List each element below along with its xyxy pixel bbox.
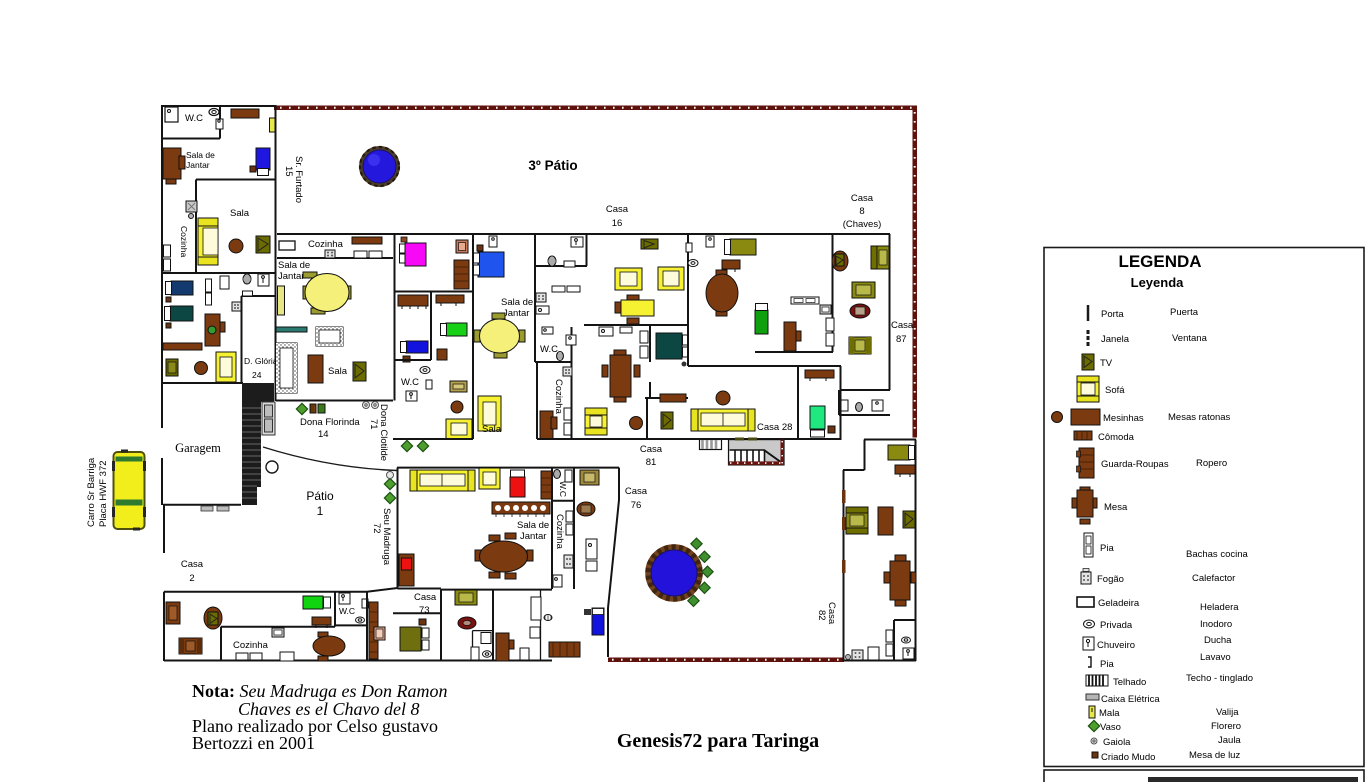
svg-text:71: 71: [368, 419, 379, 430]
svg-text:Calefactor: Calefactor: [1192, 573, 1235, 584]
svg-text:Casa: Casa: [606, 204, 629, 215]
svg-text:W.C: W.C: [185, 113, 203, 124]
svg-text:Sala de: Sala de: [517, 520, 549, 531]
svg-text:Nota: Seu Madruga es Don Ramon: Nota: Seu Madruga es Don Ramon: [192, 681, 447, 701]
svg-text:2: 2: [189, 573, 194, 584]
svg-text:Sala: Sala: [230, 208, 250, 219]
svg-text:Bachas cocina: Bachas cocina: [1186, 549, 1249, 560]
svg-text:Casa: Casa: [181, 559, 204, 570]
svg-text:Leyenda: Leyenda: [1131, 275, 1185, 290]
svg-text:8: 8: [859, 206, 864, 217]
svg-text:Vaso: Vaso: [1100, 722, 1121, 733]
svg-text:16: 16: [612, 218, 623, 229]
svg-text:Seu Madruga: Seu Madruga: [381, 508, 392, 566]
svg-text:Dona Florinda: Dona Florinda: [300, 417, 360, 428]
svg-text:Sala: Sala: [482, 424, 502, 435]
svg-text:Sofá: Sofá: [1105, 385, 1125, 396]
svg-text:Garagem: Garagem: [175, 441, 221, 455]
svg-text:Geladeira: Geladeira: [1098, 598, 1140, 609]
svg-text:Mala: Mala: [1099, 708, 1120, 719]
svg-text:Sala de: Sala de: [501, 297, 533, 308]
svg-text:Fogão: Fogão: [1097, 574, 1124, 585]
svg-text:Telhado: Telhado: [1113, 677, 1146, 688]
svg-text:1: 1: [317, 504, 324, 518]
svg-text:24: 24: [252, 370, 262, 380]
svg-text:TV: TV: [1100, 358, 1113, 369]
svg-text:Porta: Porta: [1101, 309, 1124, 320]
svg-text:Gaiola: Gaiola: [1103, 737, 1131, 748]
svg-text:Sala de: Sala de: [186, 150, 215, 160]
svg-text:81: 81: [646, 457, 657, 468]
svg-text:Genesis72 para Taringa: Genesis72 para Taringa: [617, 730, 819, 752]
svg-text:LEGENDA: LEGENDA: [1118, 252, 1201, 271]
svg-text:Ventana: Ventana: [1172, 333, 1208, 344]
svg-text:Placa HWF 372: Placa HWF 372: [98, 460, 109, 527]
svg-text:Ducha: Ducha: [1204, 635, 1232, 646]
svg-text:Dona Clotilde: Dona Clotilde: [378, 404, 389, 461]
svg-text:Jantar: Jantar: [520, 531, 546, 542]
svg-text:72: 72: [371, 523, 382, 534]
svg-text:Janela: Janela: [1101, 334, 1130, 345]
svg-text:Jantar: Jantar: [503, 308, 529, 319]
svg-text:Cozinha: Cozinha: [233, 640, 269, 651]
svg-text:Jaula: Jaula: [1218, 735, 1241, 746]
svg-text:15: 15: [283, 166, 294, 177]
svg-text:Mesas ratonas: Mesas ratonas: [1168, 412, 1231, 423]
svg-text:Privada: Privada: [1100, 620, 1133, 631]
svg-text:Pia: Pia: [1100, 659, 1114, 670]
svg-text:Heladera: Heladera: [1200, 602, 1239, 613]
svg-text:Puerta: Puerta: [1170, 307, 1199, 318]
svg-text:Inodoro: Inodoro: [1200, 619, 1232, 630]
svg-text:Techo - tinglado: Techo - tinglado: [1186, 673, 1253, 684]
svg-text:Sr. Furtado: Sr. Furtado: [293, 156, 304, 203]
svg-text:3º Pátio: 3º Pátio: [528, 158, 577, 173]
svg-text:Caixa Elétrica: Caixa Elétrica: [1101, 694, 1160, 705]
svg-text:Cozinha: Cozinha: [554, 514, 565, 550]
svg-text:Mesa de luz: Mesa de luz: [1189, 750, 1240, 761]
svg-text:Jantar: Jantar: [278, 271, 304, 282]
svg-text:Cozinha: Cozinha: [179, 226, 189, 257]
svg-text:Mesa: Mesa: [1104, 502, 1128, 513]
svg-text:Jantar: Jantar: [186, 160, 210, 170]
svg-text:(Chaves): (Chaves): [843, 219, 882, 230]
svg-text:W.C: W.C: [339, 606, 355, 616]
svg-text:Casa: Casa: [625, 486, 648, 497]
svg-text:76: 76: [631, 500, 642, 511]
svg-text:14: 14: [318, 429, 329, 440]
svg-text:82: 82: [816, 610, 827, 621]
svg-text:Pátio: Pátio: [306, 489, 334, 503]
svg-text:Chuveiro: Chuveiro: [1097, 640, 1135, 651]
svg-text:W.C: W.C: [540, 344, 558, 355]
svg-text:Sala: Sala: [328, 366, 348, 377]
svg-text:Casa: Casa: [640, 444, 663, 455]
svg-text:D. Glória: D. Glória: [244, 356, 278, 366]
svg-text:Ropero: Ropero: [1196, 458, 1227, 469]
svg-text:W.C: W.C: [401, 377, 419, 388]
svg-text:73: 73: [419, 605, 430, 616]
svg-text:Sala de: Sala de: [278, 260, 310, 271]
svg-text:87: 87: [896, 334, 907, 345]
svg-text:Lavavo: Lavavo: [1200, 652, 1231, 663]
svg-text:Florero: Florero: [1211, 721, 1241, 732]
svg-text:Guarda-Roupas: Guarda-Roupas: [1101, 459, 1169, 470]
svg-text:Cômoda: Cômoda: [1098, 432, 1135, 443]
svg-text:Bertozzi en 2001: Bertozzi en 2001: [192, 733, 315, 753]
svg-text:Cozinha: Cozinha: [308, 239, 344, 250]
svg-text:Casa: Casa: [414, 592, 437, 603]
svg-text:Carro Sr Barriga: Carro Sr Barriga: [86, 457, 97, 527]
svg-text:Mesinhas: Mesinhas: [1103, 413, 1144, 424]
svg-text:Casa: Casa: [891, 320, 914, 331]
svg-text:Pia: Pia: [1100, 543, 1114, 554]
svg-text:Casa: Casa: [851, 193, 874, 204]
svg-text:Criado Mudo: Criado Mudo: [1101, 752, 1155, 763]
svg-text:Casa 28: Casa 28: [757, 422, 792, 433]
svg-text:Cozinha: Cozinha: [553, 379, 564, 415]
svg-text:W.C: W.C: [558, 481, 568, 497]
svg-text:Valija: Valija: [1216, 707, 1239, 718]
